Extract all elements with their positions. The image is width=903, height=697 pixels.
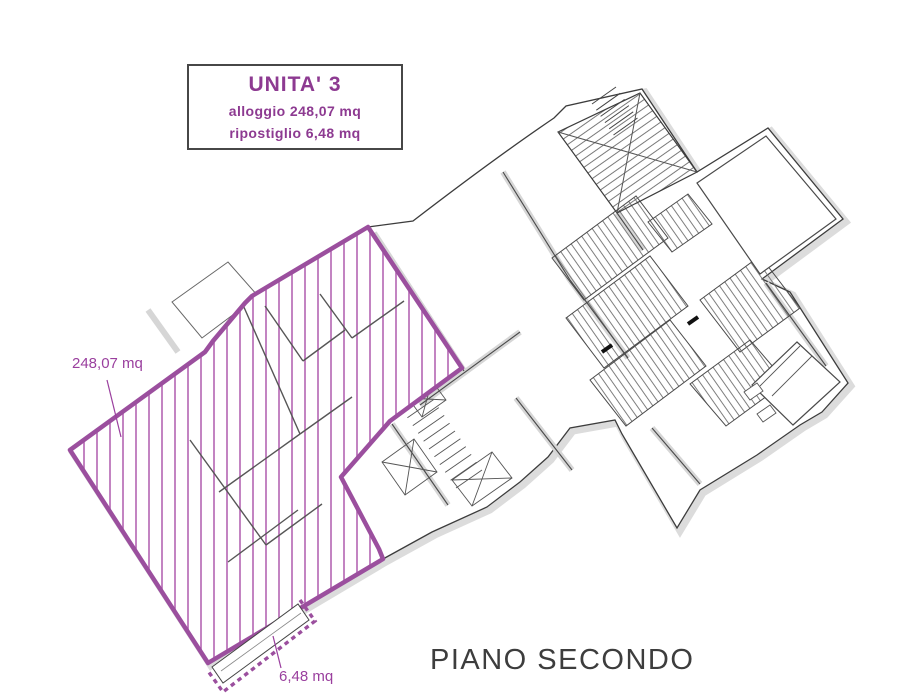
ripostiglio-area-label: 6,48 mq <box>279 668 333 685</box>
floor-title: PIANO SECONDO <box>430 644 694 677</box>
floorplan-drawing <box>0 0 903 697</box>
unit-title: UNITA' 3 <box>248 73 341 97</box>
floorplan-page: UNITA' 3 alloggio 248,07 mq ripostiglio … <box>0 0 903 697</box>
alloggio-area-label: 248,07 mq <box>72 355 143 372</box>
alloggio-area-line: alloggio 248,07 mq <box>229 103 361 119</box>
unit-title-box: UNITA' 3 alloggio 248,07 mq ripostiglio … <box>187 64 403 150</box>
ripostiglio-area-line: ripostiglio 6,48 mq <box>229 125 360 141</box>
